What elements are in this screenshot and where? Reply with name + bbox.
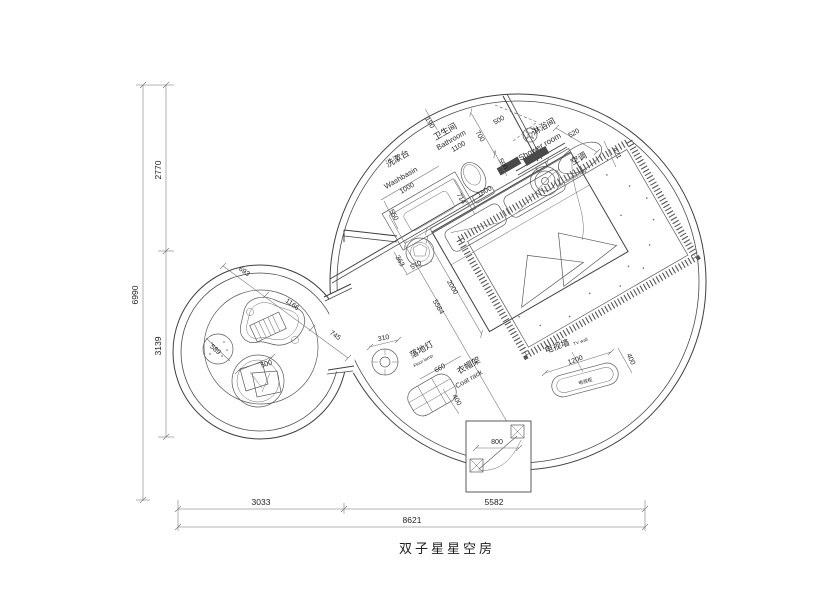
vestibule [466, 421, 531, 492]
rug [468, 150, 688, 348]
floor-plan-canvas: 6990 2770 3139 3033 5582 8621 [0, 0, 837, 592]
dim-coat-rack-length: 660 [433, 363, 447, 375]
bathroom-walls [330, 94, 567, 283]
tv-wall: 电视柜 电视墙 TV wall 1200 400 [542, 337, 636, 400]
bottom-dimension-lines: 3033 5582 8621 [175, 497, 648, 531]
dim-left-bottom: 3139 [153, 336, 163, 355]
dim-washbasin-length: 1000 [399, 182, 416, 196]
entrance: 800 [466, 421, 531, 492]
small-room-outer-wall [173, 265, 347, 439]
pouf: 589 [203, 334, 233, 364]
tv-wall-label-en: TV wall [573, 337, 589, 347]
dim-stool: 363 [393, 254, 405, 268]
dim-floor-lamp: 310 [377, 334, 390, 343]
dim-ac-width: 520 [567, 128, 581, 140]
left-dimension-lines: 6990 2770 3139 [130, 82, 174, 503]
tv-cabinet-label: 电视柜 [578, 376, 594, 387]
dim-bottom-total: 8621 [403, 515, 422, 525]
small-room-inner-wall [181, 273, 339, 431]
dim-lounge-1: 693 [237, 266, 251, 279]
dim-bottom-left: 3033 [252, 497, 271, 507]
dim-bathroom-door: 714 [455, 192, 467, 206]
floor-plan-page: 6990 2770 3139 3033 5582 8621 [0, 0, 837, 592]
desk-keyboard [250, 312, 287, 342]
large-room-outer-wall [330, 94, 706, 470]
drawing-title: 双子星星空房 [399, 541, 495, 556]
dim-room-diagonal: 5584 [431, 299, 445, 316]
dim-left-total: 6990 [130, 285, 140, 304]
dim-bottom-right: 5582 [485, 497, 504, 507]
blanket-triangle-2 [539, 211, 621, 286]
dim-tv-length: 1200 [567, 355, 584, 367]
rug-dots [472, 151, 680, 340]
dim-entry-door: 800 [491, 439, 503, 446]
passage-opening [329, 283, 355, 373]
round-chair: 500 [232, 354, 284, 407]
floor-lamp: 310 落地灯 Floor lamp [367, 334, 435, 375]
ac-label-zh: 空调 [569, 150, 589, 167]
dim-bathroom-gap: 190 [423, 116, 435, 130]
dim-shower-door: 500 [492, 115, 506, 127]
dim-lounge-2: 1166 [284, 298, 300, 313]
lounge-room: 589 500 693 1166 745 [203, 263, 351, 407]
bed-group: 2000 5584 [398, 120, 737, 455]
dim-bathroom-depth: 700 [473, 130, 485, 144]
washbasin-label-zh: 洗漱台 [384, 148, 411, 169]
dim-tv-depth: 400 [625, 353, 636, 367]
dim-bed-length: 2000 [445, 279, 459, 296]
blanket-triangle-1 [501, 233, 588, 307]
dim-left-top: 2770 [153, 160, 163, 179]
